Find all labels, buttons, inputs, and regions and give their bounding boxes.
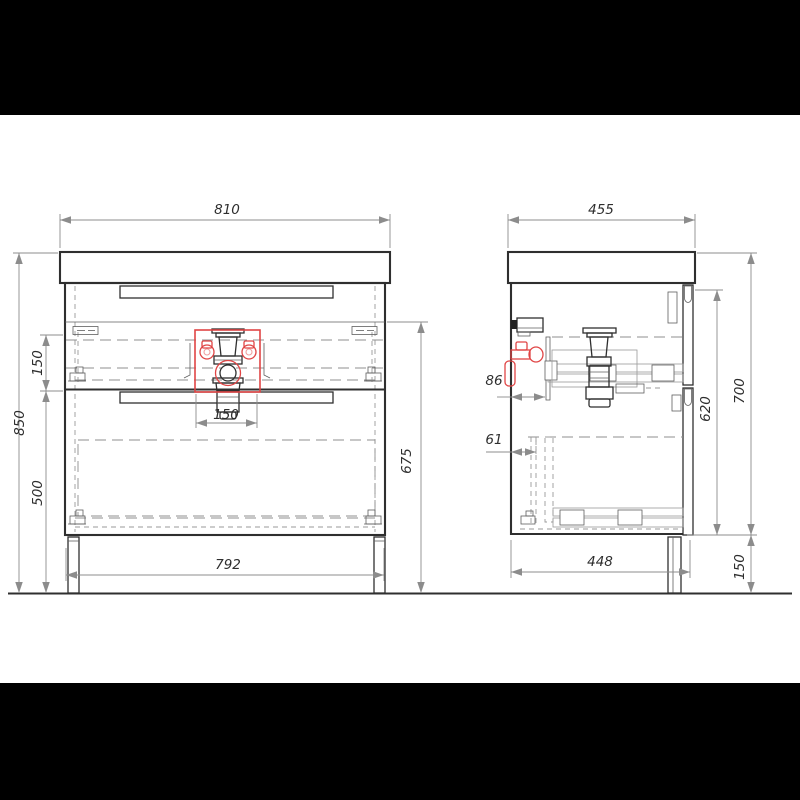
side-bottom-drawer-front: [683, 388, 693, 535]
dim-front-top-width: 810: [60, 202, 390, 248]
dim-label-455: 455: [588, 202, 614, 218]
dim-label-150-front: 150: [30, 350, 46, 376]
side-lower-drawer-internals: [520, 437, 683, 529]
dim-label-792: 792: [215, 557, 241, 573]
slide-bracket-right: [352, 327, 377, 335]
dim-label-700: 700: [732, 378, 748, 404]
dim-label-500: 500: [30, 480, 46, 506]
dim-side-bottom-depth: 448: [511, 540, 690, 578]
dim-label-810: 810: [214, 202, 240, 218]
dim-front-top-drawer-height: 150: [30, 335, 63, 391]
hinge-clip-bottom-left: [68, 510, 86, 524]
dim-label-61: 61: [485, 432, 502, 448]
dim-label-850: 850: [12, 410, 28, 436]
water-inlet-right: [242, 341, 256, 359]
front-leg-left: [68, 537, 79, 593]
dim-front-overall-height: 850: [12, 253, 58, 593]
side-upper-slides: [545, 361, 683, 382]
dim-label-150-leg: 150: [732, 554, 748, 580]
dim-label-86: 86: [485, 373, 502, 389]
wall-outlet-box: [511, 318, 543, 336]
dim-side-leg-height: 150: [732, 535, 751, 593]
front-top-handle-groove: [120, 286, 333, 298]
hinge-clip-right: [364, 367, 382, 381]
dim-front-bottom-drawer-height: 500: [30, 391, 46, 593]
dim-drain-cutout-width: 150: [196, 394, 257, 428]
front-leg-right: [374, 537, 385, 593]
front-bottom-drawer-internals: [68, 440, 382, 527]
dim-side-body-height: 700: [687, 253, 757, 535]
drawing-stage: 810 850 150 500 675 150: [0, 0, 800, 800]
vanity-drawing: 810 850 150 500 675 150: [0, 0, 800, 800]
side-view: [505, 252, 695, 593]
dim-label-620: 620: [698, 396, 714, 422]
front-countertop: [60, 252, 390, 283]
side-leg: [668, 537, 681, 593]
drain-trap-front: [212, 329, 244, 419]
dim-side-top-depth: 455: [508, 202, 695, 248]
dim-side-inner-height: 620: [695, 290, 723, 535]
dim-label-150-drain: 150: [213, 407, 239, 423]
hinge-clip-bottom-right: [364, 510, 382, 524]
dim-label-675: 675: [399, 448, 415, 474]
dim-front-bottom-width: 792: [66, 548, 384, 581]
hinge-clip-left: [68, 367, 86, 381]
water-inlet-left: [200, 341, 214, 359]
slide-bracket-left: [73, 327, 98, 335]
dim-label-448: 448: [587, 554, 613, 570]
side-countertop: [508, 252, 695, 283]
dim-front-body-height: 675: [387, 322, 428, 593]
front-bottom-handle-groove: [120, 392, 333, 403]
